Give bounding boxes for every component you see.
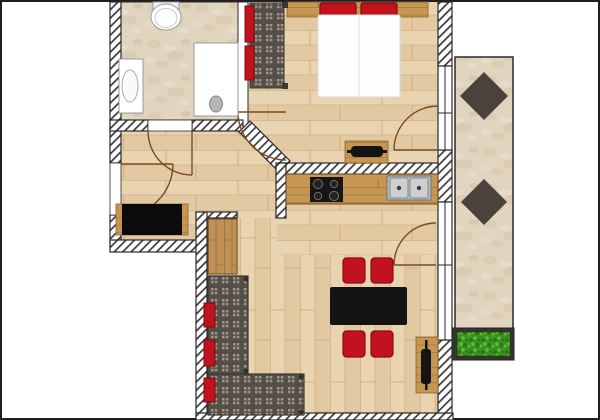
bedroom-tv — [351, 146, 383, 157]
burner-1 — [313, 179, 322, 188]
wall-hall-bottom — [110, 240, 207, 252]
wall-right-upper — [438, 2, 452, 66]
bed-pillow-right — [361, 3, 397, 16]
sofa-pillow-2 — [204, 340, 215, 366]
wardrobe-post-bottom — [282, 83, 288, 89]
dining-chair-3 — [343, 331, 365, 357]
sink-tap-left — [397, 186, 401, 190]
wall-bath-south-left — [110, 120, 148, 131]
bed-pillow-left — [320, 3, 356, 16]
sofa-post-4 — [299, 410, 304, 415]
dining-chair-2 — [371, 258, 393, 283]
dining-chair-1 — [343, 258, 365, 283]
burner-2 — [330, 180, 337, 187]
sofa-horizontal — [208, 374, 304, 415]
floor-plan-shapes — [1, 1, 599, 420]
entry-sideboard — [122, 204, 182, 235]
sofa-pillow-1 — [204, 303, 215, 327]
wall-bath-south-right — [192, 120, 243, 131]
wall-right-lower — [438, 340, 452, 413]
vanity-basin — [122, 70, 138, 102]
sink-tap-right — [417, 186, 421, 190]
planter-grass — [457, 332, 510, 356]
wall-bedroom-south — [283, 163, 440, 174]
bathroom-door-opening — [148, 120, 192, 131]
sofa-post-1 — [244, 277, 249, 282]
wardrobe-cushion-2 — [245, 46, 254, 80]
wall-right-middle — [438, 150, 452, 202]
sofa-pillow-3 — [204, 378, 215, 402]
wall-kitchen-west — [276, 163, 286, 218]
dining-chair-4 — [371, 331, 393, 357]
sofa-post-2 — [244, 369, 249, 374]
wardrobe-cushion-1 — [245, 6, 254, 42]
sofa-post-3 — [299, 375, 304, 380]
wardrobe-post-top — [282, 2, 288, 8]
living-tv — [421, 349, 431, 384]
burner-3 — [314, 192, 321, 199]
wardrobe-body — [250, 3, 284, 88]
shower-drain — [210, 96, 223, 112]
dining-table — [330, 287, 407, 325]
floor-plan-svg — [0, 0, 600, 420]
floor-plan-canvas — [0, 0, 600, 420]
burner-4 — [329, 191, 338, 200]
hall-cabinet — [208, 219, 237, 274]
